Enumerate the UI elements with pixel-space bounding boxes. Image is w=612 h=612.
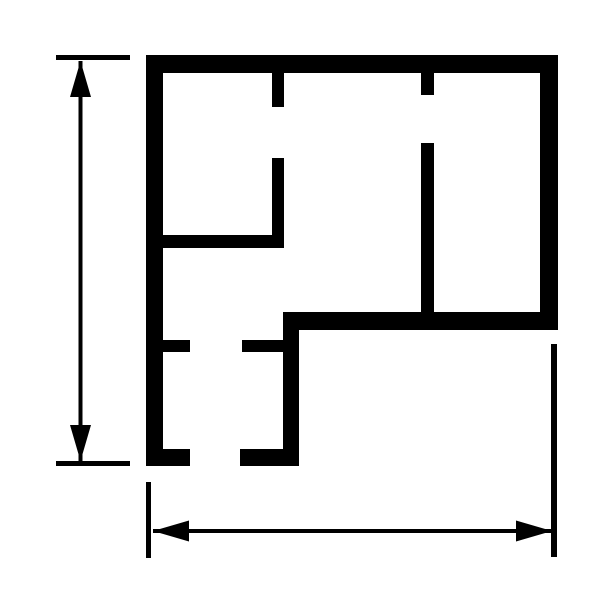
interior-wall-h2-west-stub — [163, 340, 190, 352]
outer-right-wall — [540, 55, 558, 330]
outer-step-wall — [283, 312, 299, 466]
interior-wall-h2-east-stub — [242, 340, 283, 352]
height-bottom-extension-tick — [56, 461, 130, 466]
height-top-extension-tick — [56, 55, 130, 60]
width-right-extension-tick — [551, 344, 557, 557]
outer-bottom-left-wall-west — [146, 449, 190, 466]
diagram-background — [0, 0, 612, 612]
floorplan-svg — [0, 0, 612, 612]
outer-bottom-right-wall — [283, 312, 558, 330]
outer-left-wall — [146, 55, 163, 466]
interior-wall-v1-upper-stub — [272, 73, 284, 107]
width-left-extension-tick — [146, 482, 151, 558]
interior-wall-v1-lower — [272, 158, 284, 248]
interior-wall-v2-upper-stub — [421, 73, 434, 95]
floorplan-diagram — [0, 0, 612, 612]
interior-wall-v2-lower — [421, 143, 434, 312]
outer-bottom-left-wall-east — [240, 449, 299, 466]
outer-top-wall — [146, 55, 558, 73]
interior-wall-h1 — [163, 235, 284, 248]
